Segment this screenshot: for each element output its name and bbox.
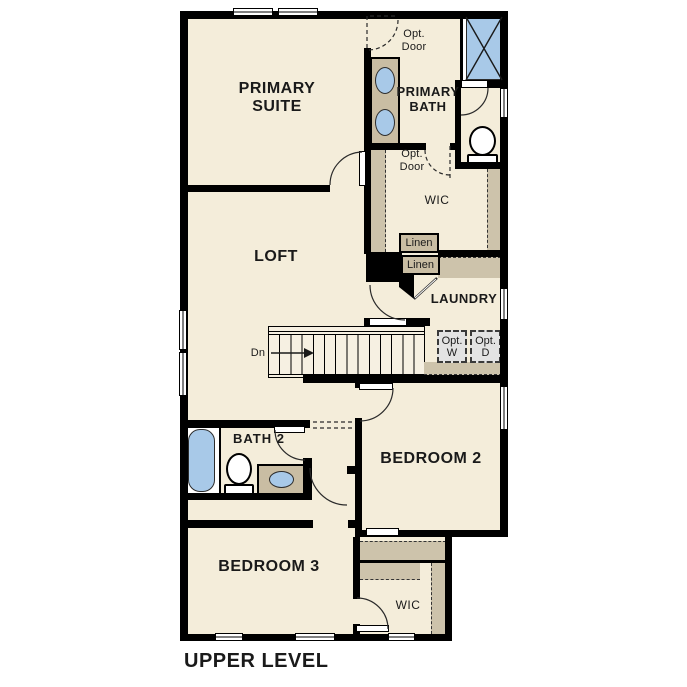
optional-door-label: Opt. Door bbox=[396, 28, 432, 54]
floor-plan-upper-level: Linen Linen Opt. W Opt. D bbox=[0, 0, 687, 687]
angled-wall bbox=[399, 274, 414, 299]
door-arc bbox=[310, 468, 347, 505]
door-arc bbox=[370, 285, 405, 320]
room-label-primary-bath: PRIMARY BATH bbox=[392, 84, 464, 114]
optional-door-label: Opt. Door bbox=[394, 148, 430, 174]
door-arc bbox=[461, 88, 488, 115]
door-arc bbox=[330, 152, 362, 185]
room-label-loft: LOFT bbox=[236, 248, 316, 266]
door-arc bbox=[360, 388, 393, 421]
room-label-bath-2: BATH 2 bbox=[230, 431, 288, 446]
room-label-bedroom-2: BEDROOM 2 bbox=[371, 450, 491, 468]
room-label-bedroom-3: BEDROOM 3 bbox=[209, 558, 329, 576]
room-label-wic-upper: WIC bbox=[412, 194, 462, 207]
doors-and-details-layer bbox=[0, 0, 687, 687]
stairs-arrow-head bbox=[304, 348, 314, 358]
room-label-laundry: LAUNDRY bbox=[424, 291, 504, 306]
plan-title: UPPER LEVEL bbox=[184, 650, 328, 673]
shower-glass-x bbox=[466, 17, 502, 80]
stairs-down-label: Dn bbox=[246, 347, 270, 360]
cased-opening-dashes bbox=[313, 422, 352, 428]
room-label-primary-suite: PRIMARY SUITE bbox=[225, 80, 329, 116]
room-label-wic-lower: WIC bbox=[384, 599, 432, 612]
optional-door-arc bbox=[368, 20, 398, 50]
